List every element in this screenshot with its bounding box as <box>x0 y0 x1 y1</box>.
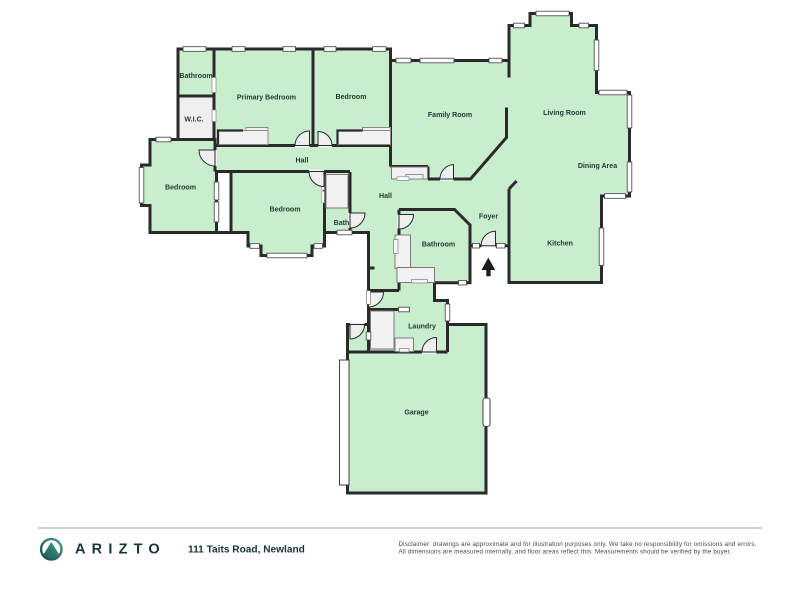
svg-text:111 Taits Road, Newland: 111 Taits Road, Newland <box>188 545 305 556</box>
svg-text:Bathroom: Bathroom <box>422 242 455 249</box>
svg-text:Bath: Bath <box>334 220 350 227</box>
svg-text:W.I.C.: W.I.C. <box>184 116 203 123</box>
svg-text:Bathroom: Bathroom <box>179 73 212 80</box>
svg-text:Kitchen: Kitchen <box>547 241 573 248</box>
svg-text:All dimensions are measured in: All dimensions are measured internally, … <box>399 548 732 555</box>
svg-text:Living Room: Living Room <box>543 110 586 117</box>
svg-text:Bedroom: Bedroom <box>270 207 301 214</box>
svg-text:Bedroom: Bedroom <box>165 185 196 192</box>
svg-text:Primary Bedroom: Primary Bedroom <box>237 95 296 102</box>
svg-text:ARIZTO: ARIZTO <box>75 542 166 558</box>
svg-text:Hall: Hall <box>379 193 392 200</box>
svg-text:Hall: Hall <box>296 158 309 165</box>
svg-text:Foyer: Foyer <box>479 214 498 221</box>
svg-text:Dining Area: Dining Area <box>578 163 617 170</box>
svg-text:Garage: Garage <box>404 410 428 417</box>
svg-text:Disclaimer: drawings are appro: Disclaimer: drawings are approximate and… <box>399 541 757 548</box>
svg-text:Bedroom: Bedroom <box>336 94 367 101</box>
svg-text:Family Room: Family Room <box>428 112 472 119</box>
svg-text:Laundry: Laundry <box>408 324 436 331</box>
